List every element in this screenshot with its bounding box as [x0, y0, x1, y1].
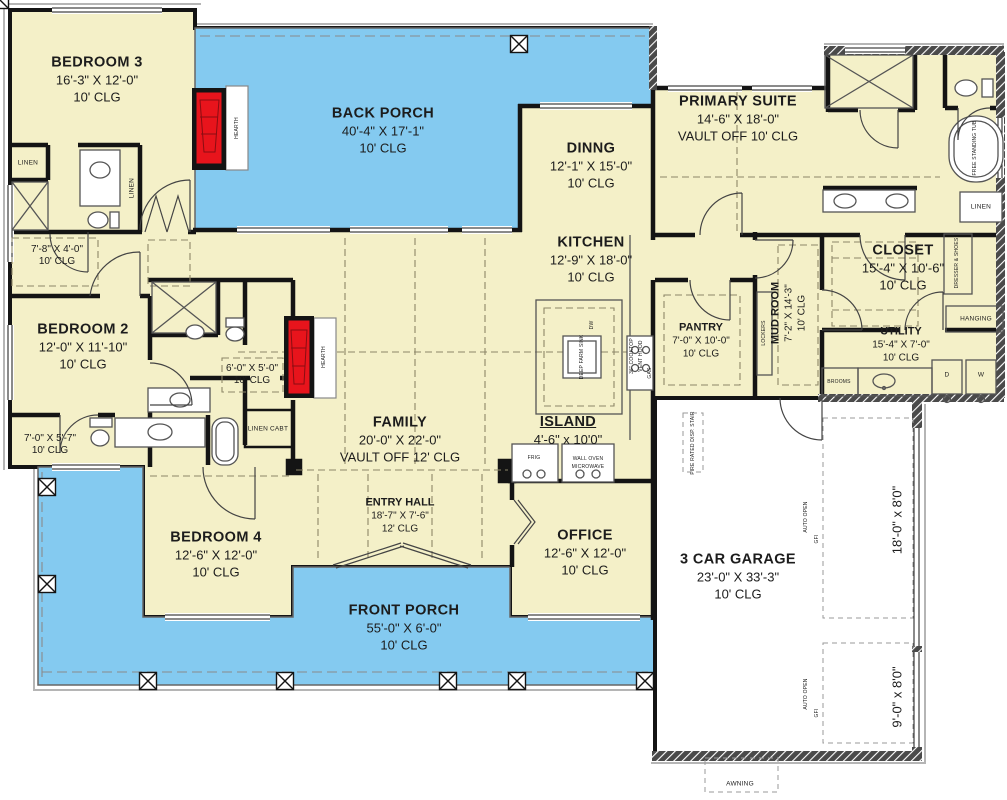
room-ceiling: 12' CLG	[365, 523, 434, 536]
room-ceiling: 10' CLG	[672, 348, 730, 361]
room-dims: 12'-6" X 12'-0"	[170, 547, 261, 564]
gfi-label: GFI	[814, 709, 820, 718]
room-dims: 7'-0" X 10'-0"	[672, 335, 730, 348]
room-dims: 7'-8" X 4'-0"	[31, 244, 83, 256]
room-name: BEDROOM 3	[51, 55, 142, 72]
room-label-island: ISLAND 4'-6" x 10'0"	[534, 414, 602, 448]
room-name: BEDROOM 2	[37, 322, 128, 339]
room-name: FAMILY	[340, 415, 460, 432]
room-dims: 12'-9" X 18'-0"	[550, 252, 632, 269]
room-name: MUD ROOM	[770, 282, 783, 344]
auto-open-label: AUTO OPEN	[803, 678, 809, 709]
room-ceiling: 10' CLG	[796, 282, 809, 344]
room-ceiling: VAULT OFF 12' CLG	[340, 449, 460, 466]
room-dims: 18'-7" X 7'-6"	[365, 510, 434, 523]
linen-label: LINEN	[129, 178, 136, 198]
fireplace-family	[284, 316, 336, 398]
room-label-mud-room: MUD ROOM 7'-2" X 14'-3" 10' CLG	[770, 282, 809, 344]
room-label-entry-hall: ENTRY HALL 18'-7" X 7'-6" 12' CLG	[365, 497, 434, 536]
room-name: BEDROOM 4	[170, 530, 261, 547]
room-ceiling: 10' CLG	[550, 269, 632, 286]
room-label-closet: CLOSET 15'-4" X 10'-6" 10' CLG	[862, 243, 944, 294]
room-dims: 16'-3" X 12'-0"	[51, 72, 142, 89]
room-ceiling: 10' CLG	[226, 375, 278, 387]
room-ceiling: 10' CLG	[550, 175, 632, 192]
room-label-kitchen: KITCHEN 12'-9" X 18'-0" 10' CLG	[550, 235, 632, 286]
garage-door-dim-18: 18'-0" x 8'0"	[890, 486, 905, 554]
room-dims: 6'-0" X 5'-0"	[226, 363, 278, 375]
room-label-hall-7-8: 7'-8" X 4'-0" 10' CLG	[31, 244, 83, 268]
room-ceiling: 10' CLG	[51, 89, 142, 106]
hearth-label: HEARTH	[234, 117, 240, 139]
room-name: CLOSET	[862, 243, 944, 260]
floor-plan: BEDROOM 3 16'-3" X 12'-0" 10' CLG BACK P…	[0, 0, 1007, 800]
room-label-garage: 3 CAR GARAGE 23'-0" X 33'-3" 10' CLG	[680, 552, 796, 603]
room-dims: 55'-0" X 6'-0"	[349, 620, 460, 637]
room-ceiling: 10' CLG	[544, 562, 626, 579]
room-dims: 4'-6" x 10'0"	[534, 431, 602, 448]
gfi-label: GFI	[814, 535, 820, 544]
wall-oven-label: WALL OVEN	[573, 456, 604, 462]
free-standing-tub-label: FREE STANDING TUB	[972, 121, 978, 176]
room-dims: 14'-6" X 18'-0"	[678, 111, 798, 128]
dresser-shoes-label: DRESSER & SHOES	[954, 238, 960, 289]
room-dims: 20'-0" X 22'-0"	[340, 432, 460, 449]
microwave-label: MICROWAVE	[572, 464, 605, 470]
room-label-front-porch: FRONT PORCH 55'-0" X 6'-0" 10' CLG	[349, 603, 460, 654]
room-dims: 15'-4" X 10'-6"	[862, 260, 944, 277]
dishwasher-label: DW	[589, 321, 595, 330]
room-dims: 40'-4" X 17'-1"	[332, 123, 434, 140]
linen-label: LINEN	[18, 160, 38, 167]
fire-rated-stair-label: FIRE RATED DISP. STAIR	[690, 411, 696, 474]
room-ceiling: 10' CLG	[862, 277, 944, 294]
vent-hood-label: VENT HOOD	[638, 340, 644, 371]
room-name: BACK PORCH	[332, 106, 434, 123]
room-ceiling: 10' CLG	[680, 586, 796, 603]
auto-open-label: AUTO OPEN	[803, 501, 809, 532]
room-label-bedroom-3: BEDROOM 3 16'-3" X 12'-0" 10' CLG	[51, 55, 142, 106]
gas-label: GAS	[647, 367, 653, 378]
room-dims: 12'-6" X 12'-0"	[544, 545, 626, 562]
linen-label: LINEN	[971, 204, 991, 211]
room-name: UTILITY	[872, 326, 930, 339]
room-label-dining: DINNG 12'-1" X 15'-0" 10' CLG	[550, 141, 632, 192]
floor-plan-drawing	[0, 0, 1007, 800]
room-label-bedroom-4: BEDROOM 4 12'-6" X 12'-0" 10' CLG	[170, 530, 261, 581]
room-dims: 12'-0" X 11'-10"	[37, 339, 128, 356]
room-name: DINNG	[550, 141, 632, 158]
room-ceiling: 10' CLG	[170, 564, 261, 581]
cooktop-label: 36" COOKTOP	[629, 338, 635, 374]
room-ceiling: 10' CLG	[872, 352, 930, 365]
room-label-family: FAMILY 20'-0" X 22'-0" VAULT OFF 12' CLG	[340, 415, 460, 466]
lockers-label: LOCKERS	[761, 320, 767, 345]
room-ceiling: 10' CLG	[349, 637, 460, 654]
room-dims: 23'-0" X 33'-3"	[680, 569, 796, 586]
room-label-pantry: PANTRY 7'-0" X 10'-0" 10' CLG	[672, 322, 730, 361]
room-name: 3 CAR GARAGE	[680, 552, 796, 569]
garage-door-openings	[910, 428, 924, 747]
room-dims: 7'-0" X 5'-7"	[24, 433, 76, 445]
linen-cabinet-label: LINEN CABT	[248, 426, 288, 433]
room-name: PANTRY	[672, 322, 730, 335]
hanging-label: HANGING	[960, 316, 992, 323]
room-label-primary-suite: PRIMARY SUITE 14'-6" X 18'-0" VAULT OFF …	[678, 94, 798, 145]
room-name: KITCHEN	[550, 235, 632, 252]
room-label-wc-6-5: 6'-0" X 5'-0" 10' CLG	[226, 363, 278, 387]
awning-label: AWNING	[726, 781, 754, 788]
room-ceiling: 10' CLG	[332, 140, 434, 157]
room-ceiling: 10' CLG	[31, 256, 83, 268]
brooms-label: BROOMS	[827, 379, 850, 385]
room-name: ENTRY HALL	[365, 497, 434, 510]
garage-door-dim-9: 9'-0" x 8'0"	[890, 666, 905, 727]
room-dims: 15'-4" X 7'-0"	[872, 339, 930, 352]
room-ceiling: VAULT OFF 10' CLG	[678, 128, 798, 145]
washer-label: W	[978, 372, 984, 379]
room-dims: 7'-2" X 14'-3"	[783, 282, 796, 344]
room-ceiling: 10' CLG	[37, 356, 128, 373]
room-label-office: OFFICE 12'-6" X 12'-0" 10' CLG	[544, 528, 626, 579]
room-name: FRONT PORCH	[349, 603, 460, 620]
room-name: ISLAND	[534, 414, 602, 431]
room-label-back-porch: BACK PORCH 40'-4" X 17'-1" 10' CLG	[332, 106, 434, 157]
room-dims: 12'-1" X 15'-0"	[550, 158, 632, 175]
room-label-utility: UTILITY 15'-4" X 7'-0" 10' CLG	[872, 326, 930, 365]
room-label-wc-7-5: 7'-0" X 5'-7" 10' CLG	[24, 433, 76, 457]
dryer-label: D	[945, 372, 950, 379]
room-name: OFFICE	[544, 528, 626, 545]
hearth-label: HEARTH	[321, 346, 327, 368]
room-name: PRIMARY SUITE	[678, 94, 798, 111]
room-ceiling: 10' CLG	[24, 445, 76, 457]
farm-sink-label: DEEP FARM SINK	[579, 335, 585, 380]
fridge-label: FRIG	[528, 455, 541, 461]
room-label-bedroom-2: BEDROOM 2 12'-0" X 11'-10" 10' CLG	[37, 322, 128, 373]
